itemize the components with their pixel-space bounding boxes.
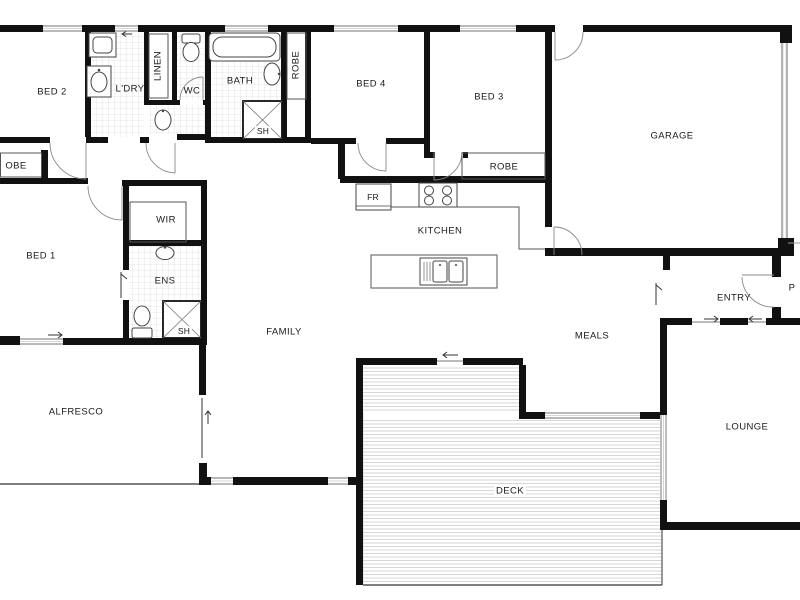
door-swing-icon — [434, 152, 462, 180]
room-label-porch: P — [789, 283, 796, 294]
room-label-bed2: BED 2 — [37, 87, 66, 98]
room-label-garage: GARAGE — [650, 131, 693, 142]
room-label-wc: WC — [184, 86, 201, 97]
laundry-trough-icon — [87, 66, 111, 97]
bathtub-icon — [209, 33, 280, 61]
room-label-ens: ENS — [155, 276, 176, 287]
floor-plan: BED 2L'DRYLINENWCBATHSHROBEBED 4BED 3GAR… — [0, 0, 800, 600]
window-icon — [225, 25, 268, 32]
window-icon — [328, 477, 348, 485]
room-label-wir: WIR — [156, 215, 176, 226]
garage-door-icon — [781, 43, 788, 238]
room-label-robe_bed3: ROBE — [490, 162, 519, 173]
window-icon — [660, 415, 667, 500]
room-label-bed4: BED 4 — [356, 79, 385, 90]
window-icon — [545, 412, 640, 419]
room-label-kitchen: KITCHEN — [418, 226, 463, 237]
door-swing-icon — [358, 143, 386, 171]
room-label-sh_bath: SH — [255, 126, 271, 136]
room-label-lounge: LOUNGE — [726, 422, 769, 433]
room-label-linen: LINEN — [153, 51, 164, 81]
room-label-alfresco: ALFRESCO — [49, 407, 103, 418]
door-swing-icon — [88, 186, 122, 220]
door-swing-icon — [50, 143, 86, 179]
slide-arrow-icon — [205, 411, 211, 424]
kitchen-bench — [391, 207, 545, 249]
room-label-fridge: FR — [367, 192, 379, 202]
window-icon — [211, 477, 233, 485]
room-label-meals: MEALS — [575, 331, 609, 342]
cavity-door-marker — [656, 283, 662, 305]
basin-icon — [156, 246, 174, 259]
slide-arrow-icon — [443, 352, 458, 358]
cooktop-icon — [419, 183, 457, 207]
room-label-deck: DECK — [494, 486, 526, 497]
room-label-sh_ens: SH — [176, 326, 192, 336]
door-swing-icon — [555, 32, 583, 60]
toilet-icon — [182, 34, 200, 62]
room-label-bed1: BED 1 — [26, 251, 55, 262]
window-icon — [460, 25, 516, 32]
room-label-ldry: L'DRY — [116, 84, 145, 95]
island-sink-icon — [420, 258, 467, 285]
room-label-bed3: BED 3 — [474, 92, 503, 103]
deck-boards — [363, 366, 662, 585]
slide-arrow-icon — [48, 332, 62, 338]
door-swing-icon — [146, 143, 175, 173]
cavity-door-marker — [121, 272, 127, 298]
window-icon — [20, 338, 63, 345]
window-icon — [115, 25, 138, 32]
basin-icon — [155, 110, 171, 130]
window-icon — [43, 25, 82, 32]
window-icon — [334, 25, 398, 32]
washing-machine-icon — [89, 33, 116, 57]
slide-arrow-icon — [704, 316, 718, 322]
room-label-family: FAMILY — [266, 327, 301, 338]
room-label-robe_bed1: OBE — [5, 161, 26, 172]
room-label-entry: ENTRY — [717, 293, 751, 304]
slide-arrows — [48, 32, 762, 425]
basin-icon — [264, 63, 280, 85]
room-label-robe_bed4: ROBE — [291, 51, 302, 80]
slide-arrow-icon — [749, 316, 762, 322]
room-label-bath: BATH — [227, 76, 253, 87]
